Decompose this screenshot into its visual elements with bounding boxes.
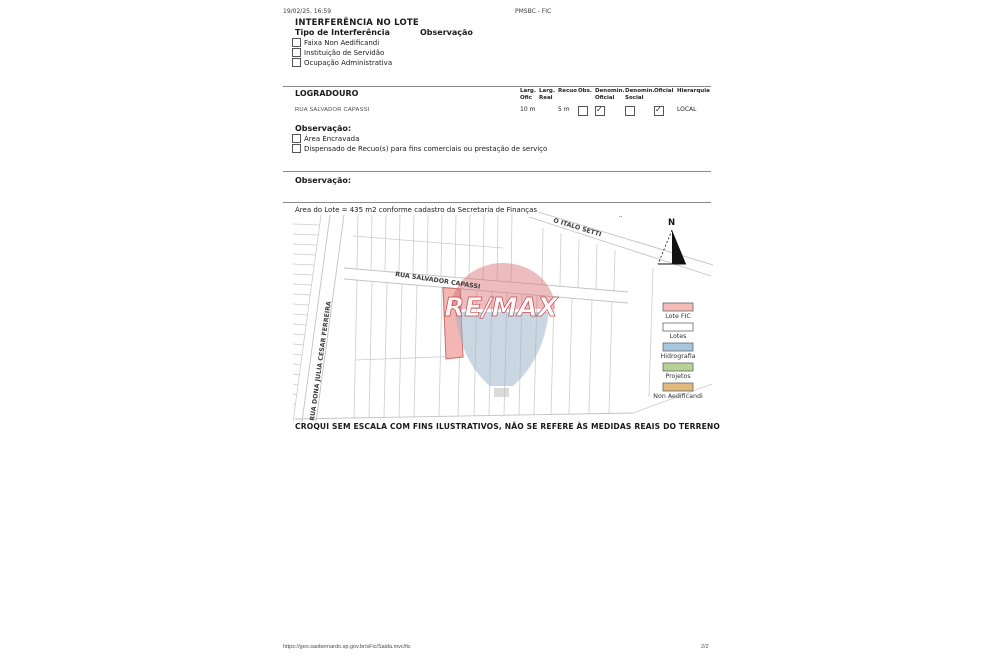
legend-swatch-non-aedificandi bbox=[663, 383, 693, 391]
north-arrow-icon: N bbox=[658, 218, 686, 264]
footer-url: https://geo.saobernardo.sp.gov.br/sFic/S… bbox=[283, 644, 411, 650]
checkbox-ocupacao-administrativa[interactable] bbox=[292, 58, 301, 67]
print-datetime: 19/02/25, 16:59 bbox=[283, 8, 331, 15]
checkbox-instituicao-servidao[interactable] bbox=[292, 48, 301, 57]
observacao1-title: Observação: bbox=[295, 124, 351, 133]
col-denomin-social: Denomin.Social bbox=[625, 88, 654, 118]
map-legend: Lote FIC Lotes Hidrografia Projetos Non … bbox=[653, 303, 703, 400]
observacao2-title: Observação: bbox=[295, 176, 351, 185]
col-header-line: Ofic bbox=[520, 95, 539, 102]
checkbox-denomin-social[interactable] bbox=[625, 106, 635, 116]
street-label-salvador-capassi: RUA SALVADOR CAPASSI bbox=[395, 271, 481, 291]
observacao1-option: Área Encravada bbox=[292, 134, 359, 143]
legend-swatch-hidrografia bbox=[663, 343, 693, 351]
croqui-map: RE/MAX RUA SALVADOR CAPASSI RUA DONA JUL… bbox=[293, 212, 713, 422]
edge-mark: ’’ bbox=[619, 216, 623, 222]
divider bbox=[283, 171, 711, 172]
interferencia-option: Faixa Non Aedificandi bbox=[292, 38, 379, 47]
checkbox-denomin-oficial[interactable] bbox=[595, 106, 605, 116]
checkbox-label: Ocupação Administrativa bbox=[304, 59, 392, 67]
checkbox-obs[interactable] bbox=[578, 106, 588, 116]
col-header-line: Hierarquia bbox=[677, 88, 710, 95]
checkbox-dispensado-recuo[interactable] bbox=[292, 144, 301, 153]
col-header-line: Recuo bbox=[558, 88, 578, 95]
col-header-line: Real bbox=[539, 95, 558, 102]
checkbox-label: Instituição de Servidão bbox=[304, 49, 384, 57]
legend-swatch-lote-fic bbox=[663, 303, 693, 311]
remax-watermark-text: RE/MAX bbox=[444, 293, 559, 323]
checkbox-oficial[interactable] bbox=[654, 106, 664, 116]
street-label-italo-setti: O ITALO SETTI bbox=[552, 217, 602, 238]
section-title-interferencia: INTERFERÊNCIA NO LOTE bbox=[295, 18, 419, 28]
legend-label: Hidrografia bbox=[660, 353, 695, 360]
observacao1-option: Dispensado de Recuo(s) para fins comerci… bbox=[292, 144, 547, 153]
legend-label: Non Aedificandi bbox=[653, 393, 703, 400]
street-row-name: RUA SALVADOR CAPASSI bbox=[295, 107, 370, 113]
col-header-line: Denomin. bbox=[625, 88, 654, 95]
interferencia-option: Instituição de Servidão bbox=[292, 48, 384, 57]
col-oficial: Oficial bbox=[654, 88, 677, 118]
cell-recuo: 5 m bbox=[558, 106, 578, 113]
croqui-disclaimer: CROQUI SEM ESCALA COM FINS ILUSTRATIVOS,… bbox=[295, 422, 720, 431]
logradouro-title: LOGRADOURO bbox=[295, 89, 358, 98]
checkbox-label: Dispensado de Recuo(s) para fins comerci… bbox=[304, 145, 547, 153]
legend-swatch-projetos bbox=[663, 363, 693, 371]
interferencia-option: Ocupação Administrativa bbox=[292, 58, 392, 67]
north-label: N bbox=[668, 218, 675, 228]
app-title: PMSBC - FIC bbox=[515, 8, 551, 15]
tipo-interferencia-label: Tipo de Interferência bbox=[295, 28, 390, 37]
col-header-line: Oficial bbox=[654, 88, 677, 95]
col-header-line: Denomin. bbox=[595, 88, 625, 95]
divider bbox=[283, 86, 711, 87]
col-header-line: Obs. bbox=[578, 88, 595, 95]
observacao-column-label: Observação bbox=[420, 28, 473, 37]
legend-label: Lotes bbox=[670, 333, 687, 340]
col-hierarquia: Hierarquia LOCAL bbox=[677, 88, 710, 118]
fic-report-page: 19/02/25, 16:59 PMSBC - FIC INTERFERÊNCI… bbox=[0, 0, 1000, 667]
col-recuo: Recuo 5 m bbox=[558, 88, 578, 118]
col-obs: Obs. bbox=[578, 88, 595, 118]
col-larg-real: Larg.Real bbox=[539, 88, 558, 118]
col-larg-ofic: Larg.Ofic 10 m bbox=[520, 88, 539, 118]
legend-label: Lote FIC bbox=[665, 313, 691, 320]
col-header-line: Oficial bbox=[595, 95, 625, 102]
cell-larg-ofic: 10 m bbox=[520, 106, 539, 113]
checkbox-label: Área Encravada bbox=[304, 135, 359, 143]
cell-hierarquia: LOCAL bbox=[677, 106, 710, 113]
checkbox-faixa-non-aedificandi[interactable] bbox=[292, 38, 301, 47]
page-number: 2/2 bbox=[701, 644, 709, 650]
checkbox-area-encravada[interactable] bbox=[292, 134, 301, 143]
legend-label: Projetos bbox=[665, 373, 690, 380]
checkbox-label: Faixa Non Aedificandi bbox=[304, 39, 379, 47]
col-denomin-oficial: Denomin.Oficial bbox=[595, 88, 625, 118]
legend-swatch-lotes bbox=[663, 323, 693, 331]
col-header-line: Social bbox=[625, 95, 654, 102]
logradouro-table-header: Larg.Ofic 10 m Larg.Real Recuo 5 m Obs. … bbox=[520, 88, 710, 118]
street-label-julia-cesar-ferreira: RUA DONA JULIA CESAR FERREIRA bbox=[309, 301, 333, 422]
divider bbox=[283, 202, 711, 203]
